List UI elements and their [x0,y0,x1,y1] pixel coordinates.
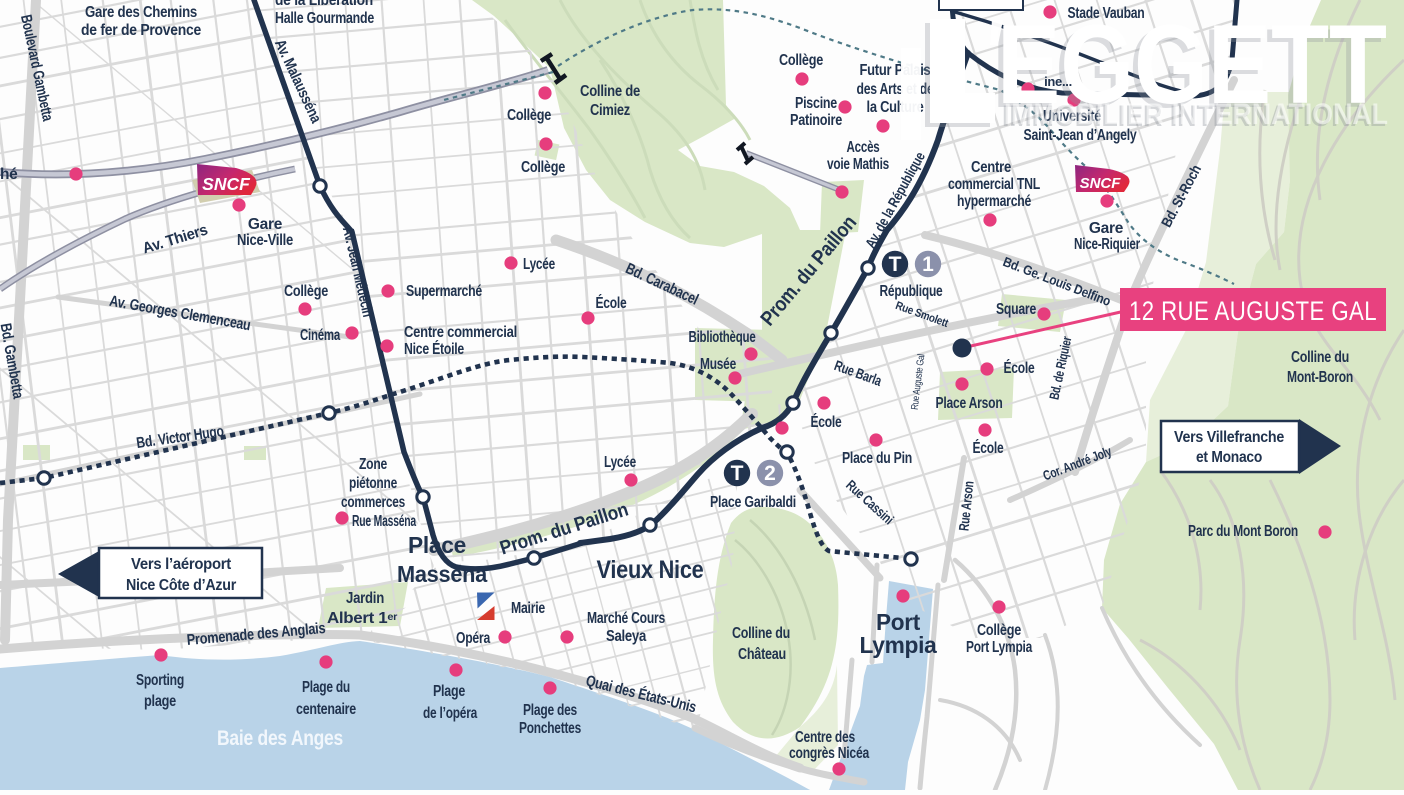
svg-text:centenaire: centenaire [296,701,357,718]
svg-text:Place du Pin: Place du Pin [842,450,912,467]
svg-text:Lycée: Lycée [604,454,637,471]
svg-text:Halle Gourmande: Halle Gourmande [275,10,375,27]
svg-text:Cimiez: Cimiez [590,102,630,119]
svg-text:Saleya: Saleya [606,628,647,645]
svg-text:Colline du: Colline du [1291,349,1349,366]
svg-text:École: École [811,414,843,431]
svg-text:Mont-Boron: Mont-Boron [1287,369,1353,386]
svg-text:T: T [731,462,744,485]
svg-text:Cinéma: Cinéma [300,327,340,344]
svg-text:Opéra: Opéra [456,630,491,647]
svg-text:Vers l’aéroport: Vers l’aéroport [131,556,232,573]
svg-text:Place Arson: Place Arson [936,395,1003,412]
svg-text:ine...: ine... [1044,74,1072,89]
svg-text:IMMOBILIER INTERNATIONAL: IMMOBILIER INTERNATIONAL [1004,98,1388,131]
svg-text:Centre: Centre [971,159,1012,176]
svg-text:Gare: Gare [248,216,283,233]
svg-text:Colline de: Colline de [580,83,641,100]
svg-text:Jardin: Jardin [346,590,384,607]
svg-text:SNCF: SNCF [202,174,251,194]
svg-text:voie Mathis: voie Mathis [827,156,889,173]
svg-text:Plage du: Plage du [302,679,350,696]
svg-text:Rue Masséna: Rue Masséna [352,513,416,530]
svg-text:1: 1 [922,253,934,276]
svg-text:Albert 1er: Albert 1er [327,610,397,627]
svg-text:Collège: Collège [521,159,566,176]
svg-text:Baie des Anges: Baie des Anges [217,727,343,750]
svg-text:Collège: Collège [284,283,329,300]
svg-text:Plage: Plage [433,683,466,700]
svg-text:de la Libération: de la Libération [275,0,373,9]
svg-text:commercial TNL: commercial TNL [948,176,1040,193]
svg-text:Centre commercial: Centre commercial [404,324,517,341]
svg-text:Lympia: Lympia [860,632,937,658]
svg-text:Nice Côte d’Azur: Nice Côte d’Azur [126,577,236,594]
svg-text:Colline du: Colline du [732,625,790,642]
svg-text:12 RUE AUGUSTE GAL: 12 RUE AUGUSTE GAL [1129,296,1377,326]
svg-text:Gare des Chemins: Gare des Chemins [85,4,197,21]
svg-text:Place: Place [408,532,466,558]
svg-text:Nice-Riquier: Nice-Riquier [1074,236,1140,253]
svg-text:Bibliothèque: Bibliothèque [689,329,756,346]
svg-text:SNCF: SNCF [1080,175,1122,192]
svg-text:et Monaco: et Monaco [1196,449,1262,466]
svg-text:Vieux Nice: Vieux Nice [597,556,704,584]
svg-text:Musée: Musée [700,356,737,373]
svg-text:Supermarché: Supermarché [406,283,483,300]
svg-text:plage: plage [144,693,177,710]
svg-text:École: École [596,295,628,312]
svg-text:Mairie: Mairie [511,600,546,617]
svg-text:Accès: Accès [847,139,880,156]
svg-text:Collège: Collège [507,107,552,124]
svg-text:Square: Square [996,301,1037,318]
svg-text:République: République [880,283,944,300]
svg-text:Plage des: Plage des [523,702,577,719]
svg-text:Collège: Collège [779,52,824,69]
svg-text:Zone: Zone [359,456,388,473]
svg-text:de fer de Provence: de fer de Provence [81,22,202,39]
svg-text:Marché Cours: Marché Cours [587,610,665,627]
svg-text:École: École [973,440,1005,457]
svg-text:T: T [889,253,902,276]
svg-text:Gare: Gare [1089,220,1124,237]
svg-text:Parc du Mont Boron: Parc du Mont Boron [1188,523,1298,540]
svg-text:Masséna: Masséna [397,561,488,587]
svg-text:Patinoire: Patinoire [790,112,843,129]
svg-text:Port Lympia: Port Lympia [966,639,1033,656]
svg-text:2: 2 [764,462,776,485]
svg-text:Vers Villefranche: Vers Villefranche [1174,429,1284,446]
svg-text:Sporting: Sporting [136,672,184,689]
svg-text:École: École [1004,360,1036,377]
svg-text:Collège: Collège [977,622,1022,639]
svg-text:des Arts et de: des Arts et de [857,81,935,98]
svg-text:commerces: commerces [341,494,405,511]
svg-text:Place Garibaldi: Place Garibaldi [710,494,796,511]
svg-text:Ponchettes: Ponchettes [519,720,581,737]
svg-text:Lycée: Lycée [523,256,556,273]
svg-text:congrès Nicéa: congrès Nicéa [789,745,870,762]
svg-text:de l’opéra: de l’opéra [423,705,478,722]
svg-text:Château: Château [738,646,786,663]
svg-text:hypermarché: hypermarché [957,193,1032,210]
svg-text:Piscine: Piscine [795,95,838,112]
svg-text:Nice-Ville: Nice-Ville [237,232,294,249]
svg-text:Nice Étoile: Nice Étoile [404,341,465,358]
svg-text:hé: hé [0,166,18,183]
svg-text:piétonne: piétonne [349,475,398,492]
svg-text:Centre des: Centre des [795,729,855,746]
